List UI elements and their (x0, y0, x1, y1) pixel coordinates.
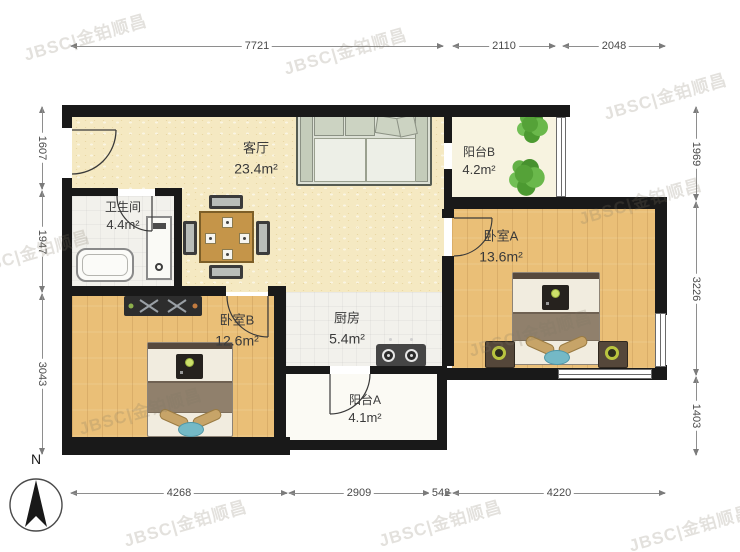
room-label-balcony-b: 阳台B 4.2m² (462, 144, 495, 180)
wall-bedroom-b-bottom (62, 437, 290, 455)
wall-bedroom-a-top (444, 197, 667, 209)
room-label-bedroom-a: 卧室A 13.6m² (479, 227, 523, 266)
room-area: 23.4m² (234, 158, 278, 178)
room-name: 卧室B (215, 311, 259, 330)
room-area: 4.2m² (462, 161, 495, 180)
room-area: 5.4m² (329, 328, 365, 348)
room-area: 12.6m² (215, 330, 259, 350)
wall-bedroom-a-right-upper (655, 209, 667, 315)
floorplan-canvas: 客厅 23.4m² 卫生间 4.4m² 阳台B 4.2m² 卧室A 13.6m²… (0, 0, 740, 552)
room-name: 厨房 (329, 309, 365, 328)
wall-kitchen-balcony-right (370, 366, 447, 374)
wall-outer-left-upper (62, 105, 72, 128)
wall-outer-left-main (62, 178, 72, 455)
wall-bathroom-top-left (72, 188, 118, 196)
room-label-balcony-a: 阳台A 4.1m² (348, 392, 381, 428)
room-label-bathroom: 卫生间 4.4m² (105, 199, 141, 235)
room-name: 卧室A (479, 227, 523, 246)
window-balcony-b-right (556, 117, 566, 197)
wall-bedroom-a-left (442, 256, 454, 366)
wall-balcony-a-bottom (286, 440, 447, 450)
door-swings-layer (0, 0, 740, 552)
north-compass: N (6, 448, 70, 544)
plant (522, 116, 538, 132)
entry-door-arc (72, 130, 116, 174)
room-area: 4.4m² (105, 216, 141, 235)
wall-balcony-b-left-lower (444, 169, 452, 197)
plant (515, 165, 533, 183)
wall-bathroom-right (174, 188, 182, 296)
room-area: 4.1m² (348, 409, 381, 428)
wall-balcony-b-left-upper (444, 117, 452, 143)
north-label: N (31, 451, 41, 467)
room-label-kitchen: 厨房 5.4m² (329, 309, 365, 348)
wall-outer-top (62, 105, 570, 117)
window-bedroom-a-right (655, 313, 666, 367)
compass-needle (25, 480, 47, 527)
room-label-living: 客厅 23.4m² (234, 139, 278, 178)
room-name: 阳台A (348, 392, 381, 409)
window-bedroom-a-bottom (558, 369, 652, 379)
wall-kitchen-balcony-left (286, 366, 330, 374)
room-area: 13.6m² (479, 246, 523, 266)
room-label-bedroom-b: 卧室B 12.6m² (215, 311, 259, 350)
room-name: 客厅 (234, 139, 278, 158)
wall-bedroom-a-left-stub (442, 209, 454, 218)
room-name: 卫生间 (105, 199, 141, 216)
wall-bedroom-b-right (274, 288, 286, 455)
wall-bedroom-b-top-left (72, 286, 226, 296)
room-name: 阳台B (462, 144, 495, 161)
